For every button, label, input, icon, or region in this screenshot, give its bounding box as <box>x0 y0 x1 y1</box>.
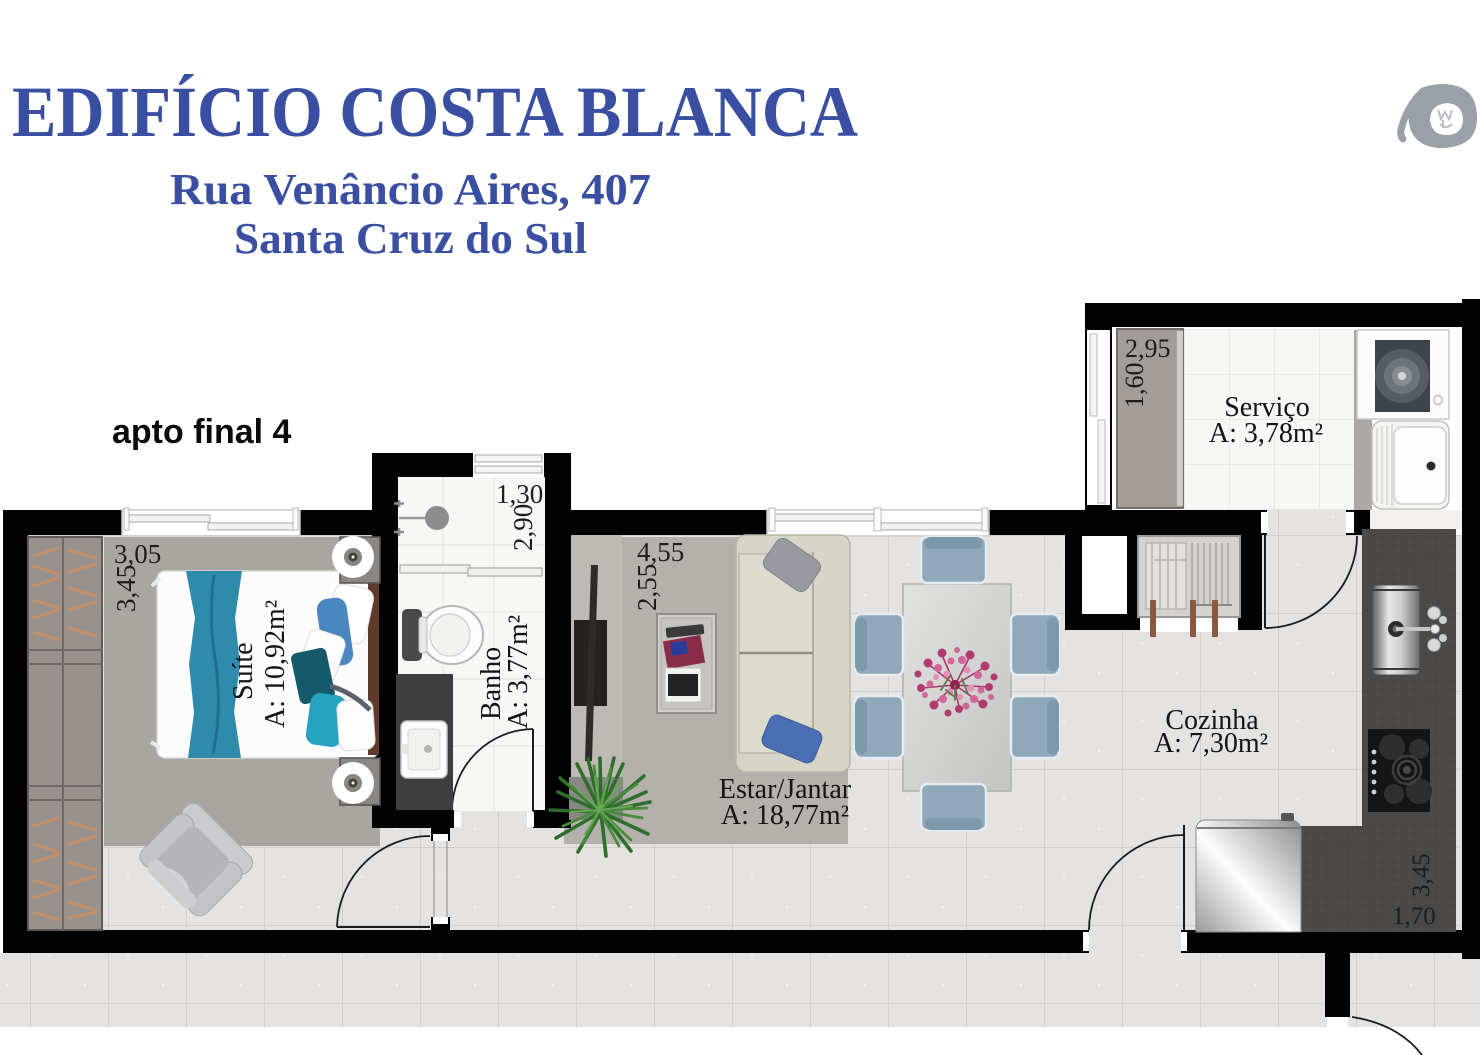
svg-text:Rua Venâncio Aires, 407: Rua Venâncio Aires, 407 <box>170 165 651 214</box>
svg-text:3,45: 3,45 <box>1408 853 1435 897</box>
svg-text:A: 18,77m²: A: 18,77m² <box>721 800 849 831</box>
svg-text:EDIFÍCIO COSTA BLANCA: EDIFÍCIO COSTA BLANCA <box>12 72 858 152</box>
svg-text:Santa Cruz do Sul: Santa Cruz do Sul <box>234 214 587 263</box>
svg-text:3,05: 3,05 <box>114 539 161 569</box>
svg-text:A: 3,78m²: A: 3,78m² <box>1209 418 1323 449</box>
svg-text:3,45: 3,45 <box>111 565 141 612</box>
svg-text:2,55: 2,55 <box>632 564 662 611</box>
svg-text:A: 10,92m²: A: 10,92m² <box>260 600 291 728</box>
svg-text:A: 3,77m²: A: 3,77m² <box>503 615 534 729</box>
svg-text:Suíte: Suíte <box>228 642 259 700</box>
svg-text:1,70: 1,70 <box>1392 903 1436 930</box>
svg-text:2,95: 2,95 <box>1125 334 1171 363</box>
svg-text:2,90: 2,90 <box>508 504 538 551</box>
svg-text:4,55: 4,55 <box>637 537 684 567</box>
svg-text:apto final 4: apto final 4 <box>112 413 292 451</box>
svg-text:1,60: 1,60 <box>1120 363 1149 409</box>
svg-text:A: 7,30m²: A: 7,30m² <box>1154 728 1268 759</box>
